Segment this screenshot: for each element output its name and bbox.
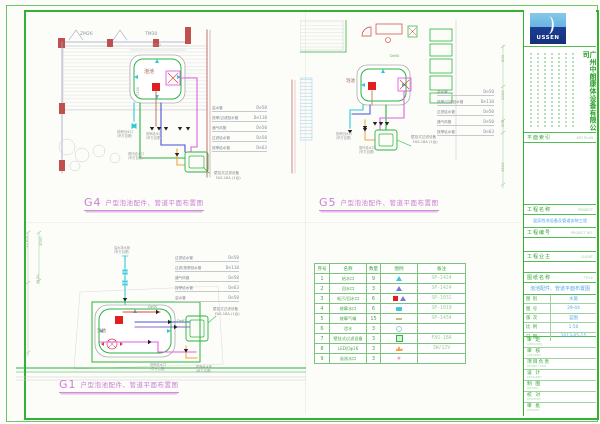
table-cell-name: LED灯φ16 [330,344,367,354]
pipe-size: De63 [483,130,494,135]
signature-label-en: RATIFIED [527,409,596,412]
table-cell-legend [381,294,418,304]
pipe-schedule-row: 按摩/过滤回水管De110 [437,96,494,106]
table-cell-legend [381,314,418,324]
pipe-schedule-row: 溢水管De50 [212,102,267,112]
signature-label-en: APPROVED [527,343,596,346]
pipe-size: De50 [483,120,494,125]
g4-title: G4 户型泡池配件、管道平面布置图 [84,197,204,211]
g4-title-code: G4 [84,197,102,208]
pipe-size: De50 [256,106,267,111]
pipe-size: De63 [228,286,239,291]
equipment-table: 序号名称数量图例备注1给水口9SP-14242回水口3SP-14243吸污/回水… [314,263,466,364]
table-cell-seq: 8 [315,344,330,354]
table-cell-remark: FAS-18A [418,334,466,344]
table-cell-name: 吸污/回水口 [330,294,367,304]
pipe-size: De110 [226,266,239,271]
pipe-schedule-row: 溢水管De50 [175,292,239,302]
dev-cyan-icon [396,307,402,311]
field-value: 29-44 [551,306,596,311]
company-info-text [551,53,553,127]
pipe-label: 溢水管 [175,296,186,301]
g1-plan-drawing [16,228,306,384]
field-table: 图 别水施图 号29-44版 次蓝图比 例1:50日 期2013-05-15 [524,295,596,337]
table-cell-legend [381,334,418,344]
table-cell-legend [381,344,418,354]
field-value: 1:50 [551,325,596,330]
table-cell-seq: 5 [315,314,330,324]
company-info-text [544,53,546,127]
client-en: CLIENT [581,255,593,259]
table-cell-remark: SP-1424 [418,284,466,294]
company-info-text [572,53,574,127]
sheet-title-row: 图纸名称 TITLE [524,273,596,283]
ring-icon [396,326,402,332]
logo-section: USSEN [524,10,596,47]
pipe-schedule-row: 通气风管De50 [175,272,239,282]
g5-title-code: G5 [319,197,337,208]
fold-mark-horizontal [26,222,522,223]
signature-row: 审 核CHECKED [524,348,596,359]
drawing-sheet: 溢水管De50按摩/过滤回水管De110通气风管De50过滤给水管De50按摩给… [0,0,600,424]
table-cell-qty: 3 [367,324,381,334]
pipe-label: 过滤/按摩回水管 [175,266,201,271]
pipe-schedule-row: 按摩给水管De63 [212,142,267,152]
project-label-row: 工程名称 PROJECT [524,205,596,215]
pipe-size: De110 [481,100,494,105]
g1-pipe-schedule: 过滤给水管De50过滤/按摩回水管De110通气风管De50按摩给水管De63溢… [175,252,239,302]
g5-title: G5 户型泡池配件、管道平面布置图 [319,197,439,211]
pipe-label: 通气风管 [175,276,189,281]
table-cell-qty: 3 [367,334,381,344]
pipe-schedule-row: 过滤给水管De50 [437,106,494,116]
signature-label-en: PROJECT MGR [527,365,596,368]
table-cell-name: 按摩气嘴 [330,314,367,324]
table-cell-seq: 2 [315,284,330,294]
table-cell-legend [381,354,418,364]
sheet-drawing-title: 泡池配件、管道平面布置图 [524,283,596,295]
table-cell-qty: 9 [367,274,381,284]
table-cell-legend [381,304,418,314]
table-cell-remark: SP-1019 [418,304,466,314]
table-cell-legend [381,274,418,284]
pipe-schedule-row: 过滤给水管De50 [212,132,267,142]
pipe-schedule-row: 按摩给水管De63 [175,282,239,292]
pipe-label: 按摩/过滤回水管 [437,100,463,105]
pipe-schedule-row: 按摩/过滤回水管De110 [212,112,267,122]
field-label: 比 例 [524,323,551,331]
field-value: 蓝图 [551,315,596,321]
field-label: 图 别 [524,295,551,303]
signature-row: 审 定APPROVED [524,337,596,348]
signature-label-en: DRAWN [527,387,596,390]
field-label: 版 次 [524,314,551,322]
table-cell-name: 溢流水口 [330,354,367,364]
project-no-label: 工程编号 [527,229,551,236]
table-cell-seq: 6 [315,324,330,334]
signature-label-en: CHECKED [527,354,596,357]
pipe-schedule-row: 过滤/按摩回水管De110 [175,262,239,272]
pipe-size: De110 [254,116,267,121]
key-plan-row: 平面索引 KEY PLAN [524,133,596,143]
table-cell-qty: 6 [367,294,381,304]
table-cell-seq: 9 [315,354,330,364]
lamp-orange-icon [396,346,403,351]
signature-table: 审 定APPROVED审 核CHECKED项目负责PROJECT MGR设 计D… [524,337,596,416]
pipe-size: De50 [483,110,494,115]
g1-title: G1 户型泡池配件、管道平面布置图 [59,379,179,393]
client-value [524,262,596,273]
project-no-en: PROJECT NO. [571,231,593,235]
project-name: 温泉泡池设备及管道安装工程 [524,215,596,228]
sheet-title-en: TITLE [584,276,593,280]
project-label: 工程名称 [527,206,551,213]
pipe-size: De50 [228,296,239,301]
title-block: USSEN 广州中朗康体设备有限公司 平面索引 KEY PLAN 工程名称 PR… [524,10,596,416]
key-plan-en: KEY PLAN [577,136,593,140]
table-cell-qty: 3 [367,344,381,354]
table-cell-seq: 1 [315,274,330,284]
pipe-label: 过滤给水管 [175,256,193,261]
company-info-text [530,53,532,127]
table-cell-legend [381,284,418,294]
field-row: 版 次蓝图 [524,314,596,323]
pipe-label: 按摩给水管 [437,130,455,135]
signature-label-en: DESIGNED [527,376,596,379]
tri-cyan-icon [396,276,402,281]
project-no-row: 工程编号 PROJECT NO. [524,228,596,238]
table-cell-legend [381,324,418,334]
g5-pipe-schedule: 溢水管De50按摩/过滤回水管De110过滤给水管De50通气风管De50按摩给… [437,86,494,136]
pipe-label: 通气风管 [212,126,226,131]
table-cell-seq: 7 [315,334,330,344]
sq-green-icon [396,335,403,342]
table-cell-remark: SP-1032 [418,294,466,304]
g4-pipe-schedule: 溢水管De50按摩/过滤回水管De110通气风管De50过滤给水管De50按摩给… [212,102,267,152]
pipe-label: 按摩/过滤回水管 [212,116,238,121]
pipe-label: 过滤给水管 [437,110,455,115]
pipe-size: De63 [256,146,267,151]
table-header-cell: 序号 [315,264,330,274]
table-cell-qty: 3 [367,354,381,364]
table-header-cell: 名称 [330,264,367,274]
signature-row: 审 批RATIFIED [524,403,596,416]
pipe-label: 按摩给水管 [175,286,193,291]
dash-tan-icon [396,318,402,320]
table-header-cell: 图例 [381,264,418,274]
table-cell-remark: SP-1424 [418,274,466,284]
table-cell-remark: 3W/12V [418,344,466,354]
pipe-label: 溢水管 [212,106,223,111]
pipe-schedule-row: 溢水管De50 [437,86,494,96]
pipe-size: De50 [228,256,239,261]
company-info-text [565,53,567,127]
g4-title-text: 户型泡池配件、管道平面布置图 [106,199,204,208]
table-cell-remark [418,354,466,364]
pipe-schedule-row: 按摩给水管De63 [437,126,494,136]
client-label: 工程业主 [527,253,551,260]
table-cell-qty: 6 [367,304,381,314]
field-row: 图 号29-44 [524,304,596,313]
pipe-size: De50 [228,276,239,281]
pipe-label: 按摩给水管 [212,146,230,151]
signature-row: 项目负责PROJECT MGR [524,359,596,370]
company-name: 广州中朗康体设备有限公司 [581,51,595,133]
table-header-cell: 数量 [367,264,381,274]
pipe-label: 通气风管 [437,120,451,125]
pipe-label: 溢水管 [437,90,448,95]
pipe-size: De50 [256,126,267,131]
client-row: 工程业主 CLIENT [524,252,596,262]
table-cell-name: 回水口 [330,284,367,294]
project-no-value [524,238,596,252]
signature-row: 设 计DESIGNED [524,370,596,381]
table-cell-seq: 4 [315,304,330,314]
pipe-size: De50 [483,90,494,95]
key-plan-label: 平面索引 [527,134,551,141]
sheet-title-label: 图纸名称 [527,274,551,281]
table-header-cell: 备注 [418,264,466,274]
signature-row: 校 对PROOFED [524,392,596,403]
table-cell-qty: 3 [367,284,381,294]
table-cell-seq: 3 [315,294,330,304]
pipe-schedule-row: 通气风管De50 [212,122,267,132]
table-cell-name: 给水口 [330,274,367,284]
field-row: 比 例1:50 [524,323,596,332]
table-cell-remark: SP-1434 [418,314,466,324]
star-pink-icon [396,356,401,362]
key-plan-box [524,143,596,205]
tri-blue-icon [396,286,402,291]
field-value: 水施 [551,296,596,302]
table-cell-name: 泄水 [330,324,367,334]
project-en: PROJECT [578,208,593,212]
company-logo: USSEN [530,13,566,44]
field-row: 图 别水施 [524,295,596,304]
table-cell-remark [418,324,466,334]
g1-title-code: G1 [59,379,77,390]
table-cell-name: 按摩水口 [330,304,367,314]
g1-title-text: 户型泡池配件、管道平面布置图 [81,381,179,390]
field-label: 图 号 [524,304,551,312]
sq-red-icon [393,296,406,301]
swimmer-icon [542,15,555,34]
pipe-schedule-row: 通气风管De50 [437,116,494,126]
g5-title-text: 户型泡池配件、管道平面布置图 [341,199,439,208]
pipe-size: De50 [256,136,267,141]
signature-label-en: PROOFED [527,398,596,401]
company-section: 广州中朗康体设备有限公司 [524,47,596,133]
signature-row: 制 图DRAWN [524,381,596,392]
company-info-text [537,53,539,127]
table-cell-name: 壁挂式过滤设备 [330,334,367,344]
company-info-text [558,53,560,127]
logo-text: USSEN [536,35,559,41]
pipe-schedule-row: 过滤给水管De50 [175,252,239,262]
pipe-label: 过滤给水管 [212,136,230,141]
table-cell-qty: 15 [367,314,381,324]
